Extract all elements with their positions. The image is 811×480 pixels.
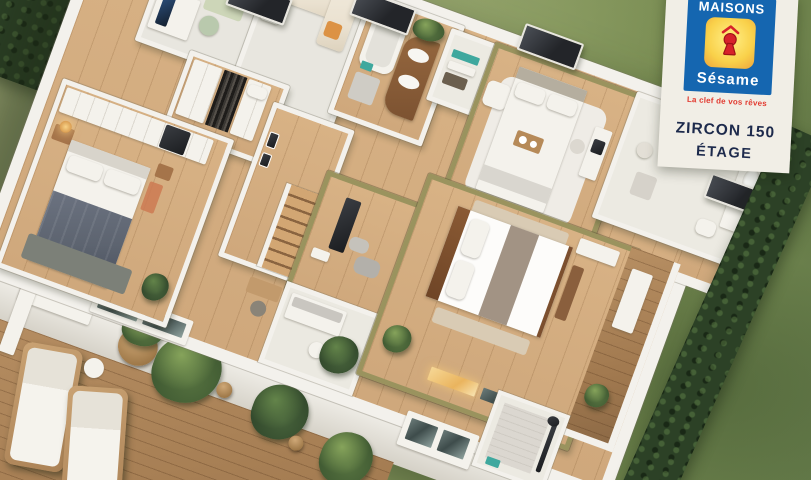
brand-logo: MAISONS Sésame <box>683 0 776 95</box>
balcony-plant <box>581 380 612 411</box>
laundry-basket <box>441 71 468 90</box>
brand-name: MAISONS <box>698 0 765 17</box>
shower-head <box>546 415 561 429</box>
outdoor-sofa-cushions <box>291 296 343 323</box>
office-chair <box>196 13 222 39</box>
sink-1 <box>406 46 431 66</box>
floor-cushion-1 <box>352 254 383 280</box>
tv-room-tray <box>310 247 330 263</box>
brand-tagline: La clef de vos rêves <box>661 94 793 110</box>
brand-subname: Sésame <box>696 69 760 89</box>
level-name: ÉTAGE <box>658 141 791 164</box>
bedroom3-plant <box>379 321 415 357</box>
outdoor-sofa <box>284 292 347 336</box>
wall-frame-1 <box>265 131 280 149</box>
bath2-mat <box>629 171 658 201</box>
logo-keyhole-badge <box>704 17 757 70</box>
bedroom3-wardrobe <box>575 238 620 267</box>
tray-plate-2 <box>529 140 538 149</box>
breakfast-tray <box>513 130 545 155</box>
model-name: ZIRCON 150 <box>659 118 792 143</box>
wall-frame-2 <box>258 152 272 169</box>
toilet <box>694 217 718 239</box>
brand-card: MAISONS Sésame La clef de vos rêves ZIRC… <box>657 0 798 173</box>
lounge-chair-2 <box>60 385 129 480</box>
floor-cushion-2 <box>347 235 371 255</box>
bed3-throw-taupe <box>478 225 539 325</box>
tray-plate-1 <box>518 135 528 145</box>
nightstand-right <box>154 163 174 182</box>
floor-plan-render: MAISONS Sésame La clef de vos rêves ZIRC… <box>0 0 811 480</box>
keyhole-icon <box>711 22 749 65</box>
deck-side-table <box>81 355 107 381</box>
bath2-chair <box>634 140 655 161</box>
sink-2 <box>396 72 421 92</box>
glass-door-pane-1 <box>405 418 439 448</box>
bedroom1-plant <box>138 270 172 305</box>
bath-mat <box>347 71 381 106</box>
window-warm <box>427 367 479 397</box>
lounge-cushion-2 <box>65 390 123 480</box>
glass-door-pane-2 <box>437 429 471 459</box>
